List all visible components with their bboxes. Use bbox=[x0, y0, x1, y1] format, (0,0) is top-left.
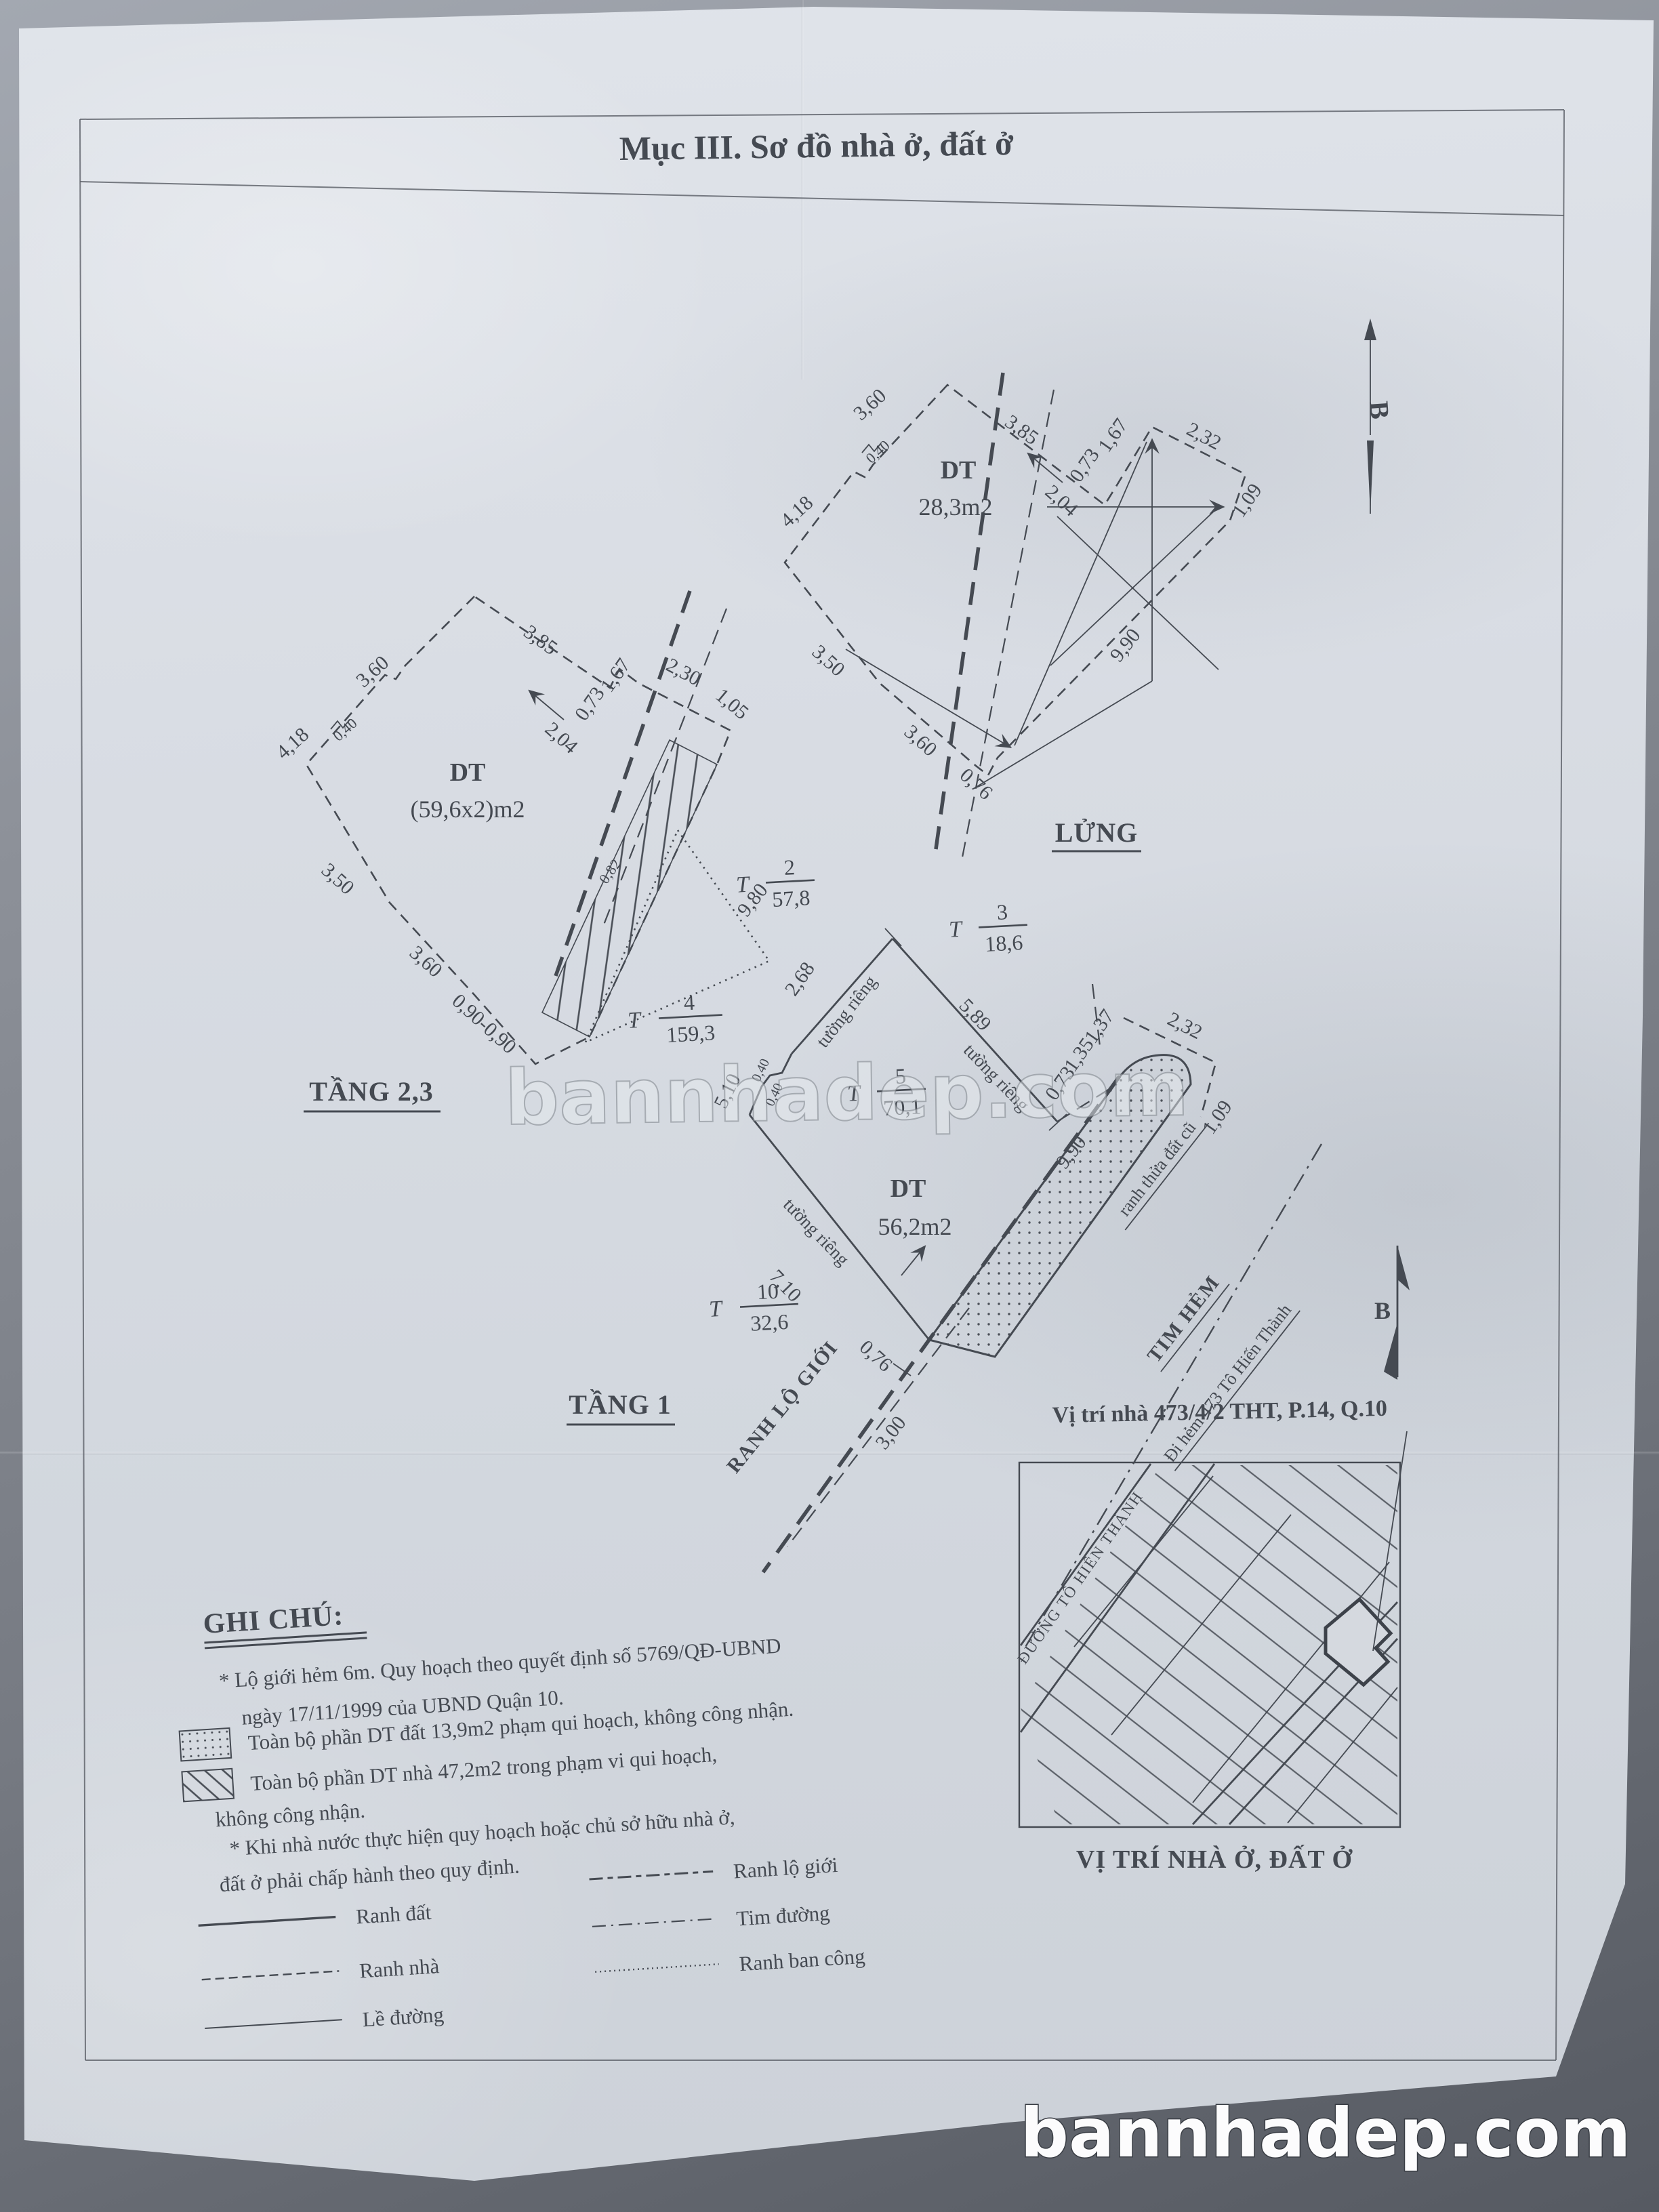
legend-left: Ranh đất Ranh nhà Lề đường bbox=[198, 1900, 445, 2041]
legend-label: Ranh ban công bbox=[739, 1944, 866, 1976]
dim-label: 3,60 bbox=[405, 941, 447, 982]
svg-text:T: T bbox=[708, 1296, 724, 1322]
document-drawing: Mục III. Sơ đồ nhà ở, đất ở B bbox=[0, 0, 1659, 2212]
legend-right: Ranh lộ giới Tim đường Ranh ban công bbox=[589, 1851, 866, 1985]
photo-background: Mục III. Sơ đồ nhà ở, đất ở B bbox=[0, 0, 1659, 2212]
dim-label: 0,40 bbox=[329, 714, 360, 744]
dim-label: 3,00 bbox=[871, 1412, 910, 1454]
area-heading: DT bbox=[450, 758, 486, 787]
floor-label-tang1: TẦNG 1 bbox=[569, 1389, 672, 1420]
map-caption: VỊ TRÍ NHÀ Ở, ĐẤT Ở bbox=[1076, 1845, 1353, 1874]
area-value: (59,6x2)m2 bbox=[411, 796, 525, 823]
lung-diagram: 3,60 0,40 4,18 3,85 2,04 0,73 1,67 2,32 … bbox=[776, 373, 1267, 857]
notes-block: GHI CHÚ: * Lộ giới hẻm 6m. Quy hoạch the… bbox=[171, 1568, 867, 2042]
svg-text:T: T bbox=[627, 1008, 642, 1033]
dim-label: 2,30 bbox=[663, 654, 705, 691]
dim-label: 3,50 bbox=[317, 859, 359, 899]
dim-label: 9,90 bbox=[1105, 624, 1145, 666]
svg-text:32,6: 32,6 bbox=[750, 1309, 789, 1336]
svg-text:TIM HẺM: TIM HẺM bbox=[1143, 1271, 1224, 1367]
area-heading: DT bbox=[890, 1174, 926, 1203]
svg-text:T: T bbox=[948, 917, 964, 943]
dim-label: 1,67 bbox=[1094, 415, 1132, 457]
dim-label: 1,67 bbox=[596, 655, 635, 697]
north-arrow-right: B bbox=[1374, 1246, 1410, 1380]
dim-label: 1,09 bbox=[1228, 480, 1267, 522]
ranh-lo-gioi-label: RANH LỘ GIỚI bbox=[722, 1336, 842, 1477]
legend-label: Ranh đất bbox=[355, 1900, 432, 1929]
svg-text:18,6: 18,6 bbox=[984, 930, 1023, 956]
notes-heading: GHI CHÚ: bbox=[202, 1599, 344, 1640]
legend-symbol-dotted-area bbox=[180, 1728, 232, 1761]
parcel-t3: T 3 18,6 bbox=[947, 899, 1029, 958]
tim-hem-label: TIM HẺM bbox=[1141, 1268, 1229, 1372]
dim-label: 4,18 bbox=[776, 491, 817, 532]
parcel-t4: T 4 159,3 bbox=[626, 989, 724, 1049]
dim-label: 2,32 bbox=[1164, 1008, 1206, 1044]
floor-label-lung: LỬNG bbox=[1055, 817, 1139, 848]
dim-label: 2,04 bbox=[541, 718, 582, 758]
dim-label: 3,85 bbox=[1001, 411, 1043, 450]
svg-text:4: 4 bbox=[683, 990, 695, 1015]
dim-label: 5,89 bbox=[955, 994, 996, 1036]
dim-label: 3,50 bbox=[808, 640, 849, 681]
dim-label: 2,04 bbox=[1041, 480, 1082, 521]
dim-label: 1,05 bbox=[711, 684, 752, 724]
dim-label: 3,60 bbox=[900, 720, 941, 761]
dim-label: 3,85 bbox=[520, 621, 562, 660]
legend-symbol-hatched-area bbox=[182, 1769, 234, 1802]
dim-label: 2,68 bbox=[781, 958, 819, 1000]
svg-text:57,8: 57,8 bbox=[771, 885, 811, 912]
svg-text:3: 3 bbox=[996, 899, 1008, 924]
area-value: 56,2m2 bbox=[878, 1213, 951, 1240]
wall-label: tường riêng bbox=[812, 972, 880, 1051]
north-label: B bbox=[1374, 1297, 1391, 1324]
svg-text:2: 2 bbox=[783, 855, 796, 880]
legend-label: Ranh nhà bbox=[359, 1954, 440, 1982]
dim-label: 0,76 bbox=[855, 1336, 897, 1376]
svg-text:159,3: 159,3 bbox=[665, 1020, 716, 1047]
dim-label: 2,32 bbox=[1183, 418, 1225, 455]
note-line: đất ở phải chấp hành theo quy định. bbox=[219, 1853, 520, 1896]
north-label: B bbox=[1364, 400, 1395, 420]
floor-label-tang23: TẦNG 2,3 bbox=[309, 1076, 434, 1107]
dim-label: 0,90-0,90 bbox=[448, 989, 521, 1058]
note-line: không công nhận. bbox=[215, 1799, 366, 1832]
dim-label: 3,60 bbox=[352, 651, 393, 692]
svg-text:10: 10 bbox=[756, 1279, 779, 1305]
svg-text:T: T bbox=[735, 872, 751, 898]
legend-label: Lề đường bbox=[362, 2003, 445, 2031]
legend-label: Ranh lộ giới bbox=[733, 1853, 838, 1883]
dim-label: 3,60 bbox=[849, 384, 890, 425]
dim-label: 4,18 bbox=[272, 723, 313, 764]
legend-label: Tim đường bbox=[736, 1901, 831, 1931]
watermark-center: bannhadep.com bbox=[504, 1045, 1189, 1143]
north-arrow-top: B bbox=[1364, 319, 1395, 514]
dim-label: 0,40 bbox=[862, 436, 893, 466]
area-value: 28,3m2 bbox=[918, 493, 992, 520]
dim-label: 1,09 bbox=[1198, 1097, 1237, 1139]
watermark-bottom: bannhadep.com bbox=[1020, 2093, 1631, 2173]
location-map: ĐƯỜNG TÔ HIẾN THÀNH VỊ TRÍ NHÀ Ở, ĐẤT Ở bbox=[1013, 1431, 1407, 1874]
location-line: Vị trí nhà 473/4/2 THT, P.14, Q.10 bbox=[1052, 1396, 1387, 1428]
page-title: Mục III. Sơ đồ nhà ở, đất ở bbox=[619, 124, 1014, 167]
area-heading: DT bbox=[941, 456, 977, 485]
note-line: Toàn bộ phần DT nhà 47,2m2 trong phạm vi… bbox=[250, 1742, 718, 1795]
